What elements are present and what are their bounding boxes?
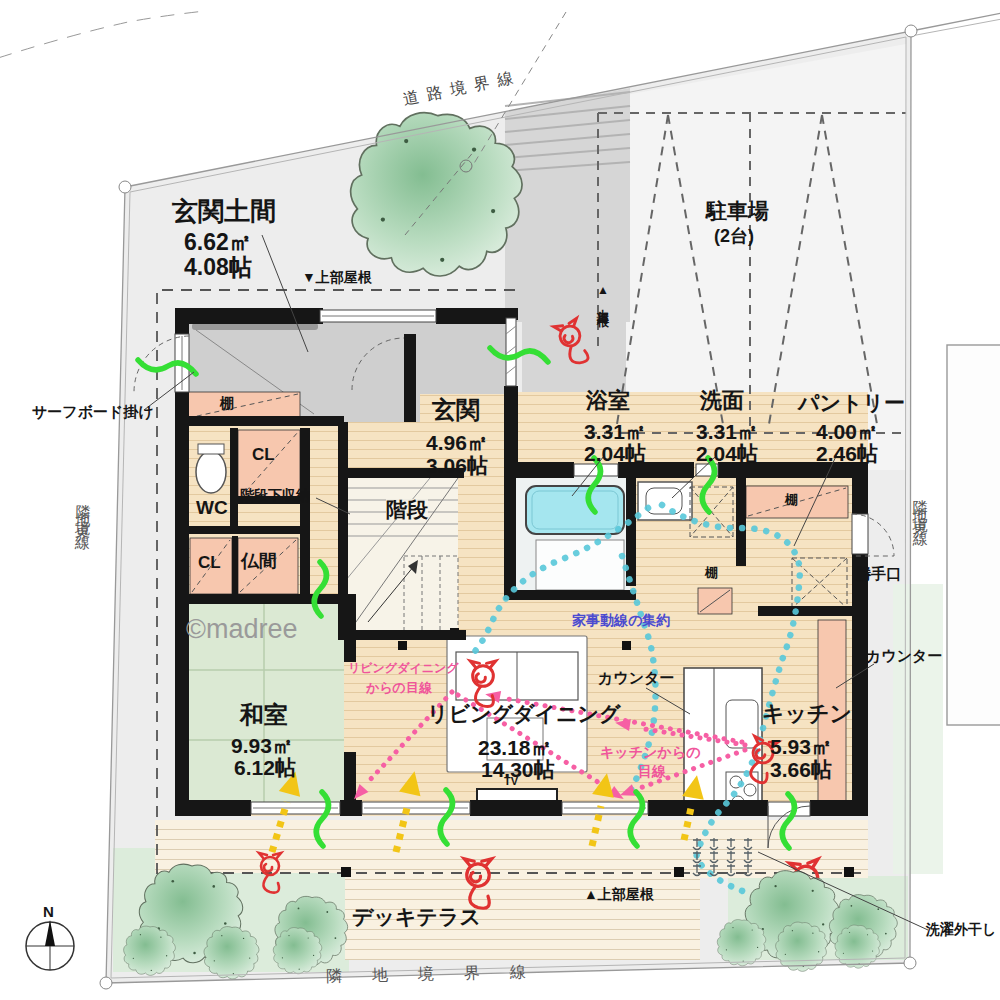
shelf-label-doma: 棚 [220,396,234,410]
shelf-label-washroom: 棚 [705,566,718,579]
area-washroom-m2: 3.31㎡ [696,421,758,442]
room-label-kitchen: キッチン [762,703,852,725]
area-pantry-jo: 2.46帖 [816,443,878,464]
area-washitsu-m2: 9.93㎡ [231,735,293,756]
roof-side-label: ▲上部屋根 [597,283,609,307]
room-label-stairs: 階段 [386,499,428,520]
area-genkan-m2: 4.96㎡ [426,432,488,453]
room-label-washitsu: 和室 [240,703,288,727]
sight-kitchen-label-1: キッチンからの [600,745,700,759]
room-label-washroom: 洗面 [700,390,744,412]
room-label-closet-upper: CL [252,446,275,463]
roof-back-label: ▲上部屋根 [584,887,654,901]
laundry-label: 洗濯外干し [926,922,996,936]
surfboard-label: サーフボード掛け [32,404,154,419]
room-label-bathroom: 浴室 [586,390,630,412]
room-label-genkan: 玄関 [432,398,480,422]
sight-living-label-1: リビングダイニング [348,662,459,674]
compass-icon [26,920,74,970]
counter-wall-label: カウンター [866,648,942,663]
housework-line-label: 家事動線の集約 [572,613,670,627]
under-stair-storage-label: 階段下収納 [240,488,310,502]
room-label-parking: 駐車場 [706,200,769,221]
adjacent-boundary-left-label: 隣地境界線 [76,492,92,532]
sight-kitchen-label-2: 目線 [638,764,666,778]
back-door-label: 勝手口 [856,566,901,581]
area-washroom-jo: 2.04帖 [696,443,758,464]
area-kitchen-jo: 3.66帖 [770,759,832,780]
room-label-butsuma: 仏間 [241,552,277,570]
area-bathroom-m2: 3.31㎡ [584,421,646,442]
area-bathroom-jo: 2.04帖 [584,443,646,464]
room-label-living-dining: リビングダイニング [427,703,620,724]
floor-plan: 玄関土間 6.62㎡ 4.08帖 ▼上部屋根 駐車場 (2台) 浴室 3.31㎡… [0,0,1000,1000]
counter-island-label: カウンター [598,670,674,685]
room-label-deck: デッキテラス [352,906,481,927]
compass-north-label: N [43,904,54,919]
watermark: ©madree [186,616,297,643]
room-label-closet-lower: CL [198,554,221,571]
area-living-dining-m2: 23.18㎡ [478,737,552,758]
area-genkan-doma-m2: 6.62㎡ [184,231,252,254]
area-genkan-jo: 3.06帖 [426,455,488,476]
shelf-label-pantry: 棚 [785,493,798,506]
room-label-pantry: パントリー [798,392,905,413]
parking-capacity: (2台) [714,227,754,245]
room-label-genkan-doma: 玄関土間 [172,198,276,224]
area-genkan-doma-jo: 4.08帖 [184,256,252,279]
area-pantry-m2: 4.00㎡ [816,421,878,442]
area-kitchen-m2: 5.93㎡ [770,736,832,757]
floor-plan-graphics [0,0,1000,1000]
area-washitsu-jo: 6.12帖 [234,757,296,778]
sight-living-label-2: からの目線 [366,681,432,694]
tv-label: TV [504,776,518,787]
roof-front-label: ▼上部屋根 [302,270,372,284]
adjacent-boundary-right-label: 隣地境界線 [913,488,928,528]
room-label-wc: WC [196,498,228,517]
